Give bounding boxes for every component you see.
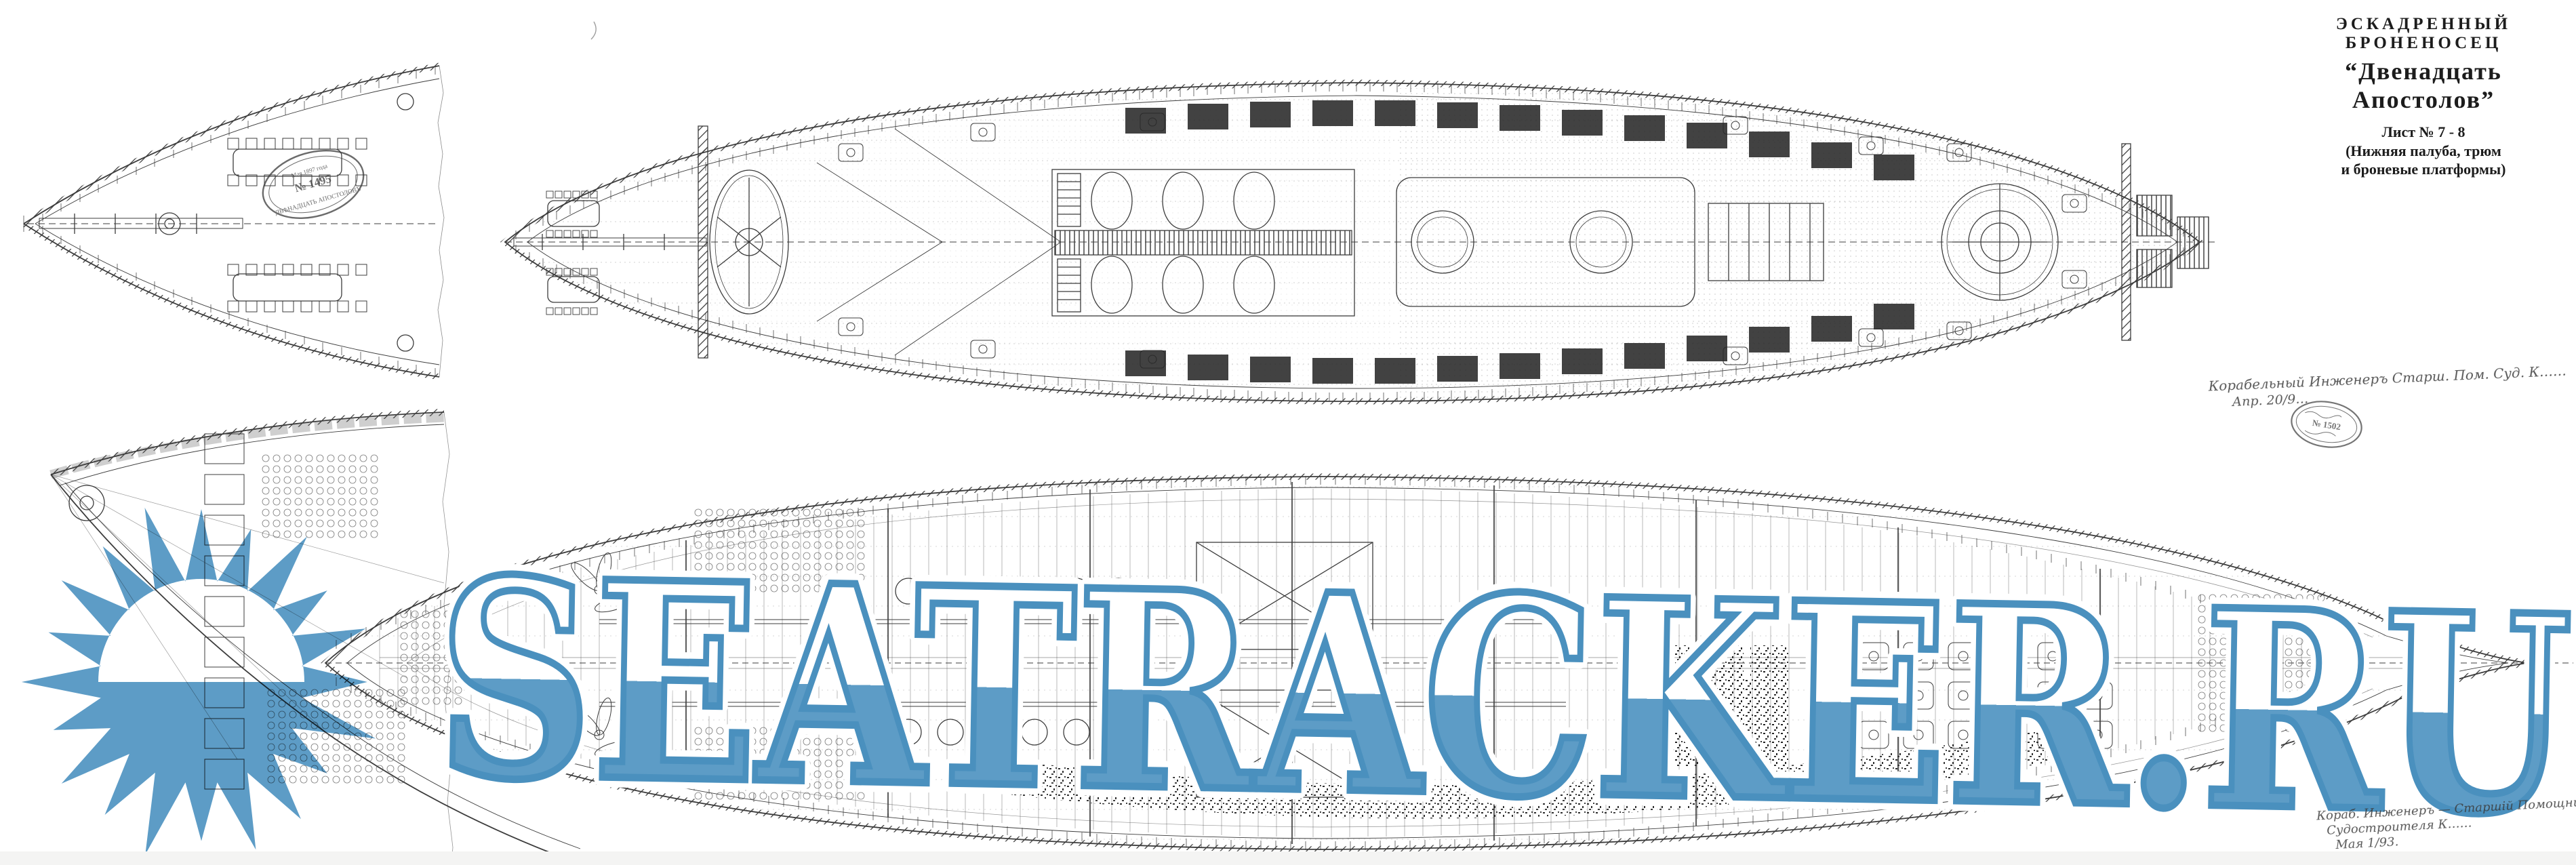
watermark-text-outline: SEATRACKER.RU <box>435 520 2574 865</box>
watermark-blue: SEATRACKER.RU SEATRACKER.RU <box>0 0 2576 865</box>
title-block: ЭСКАДРЕННЫЙ БРОНЕНОСЕЦ “Двенадцать Апост… <box>2271 15 2576 178</box>
ship-class-title: ЭСКАДРЕННЫЙ БРОНЕНОСЕЦ <box>2271 15 2576 53</box>
ship-name-title: “Двенадцать Апостолов” <box>2271 57 2576 114</box>
sheet-subtitle-1: (Нижняя палуба, трюм <box>2271 142 2576 160</box>
sheet-subtitle-2: и броневые платформы) <box>2271 161 2576 178</box>
scanned-ship-plan-sheet: Мая 1897 года № 1495 ДВѢНАДЦАТЬ АПОСТОЛО… <box>0 0 2576 865</box>
sheet-number: Лист № 7 - 8 <box>2271 123 2576 141</box>
sunburst-icon <box>22 508 376 855</box>
scan-artifact-band <box>0 851 2576 865</box>
